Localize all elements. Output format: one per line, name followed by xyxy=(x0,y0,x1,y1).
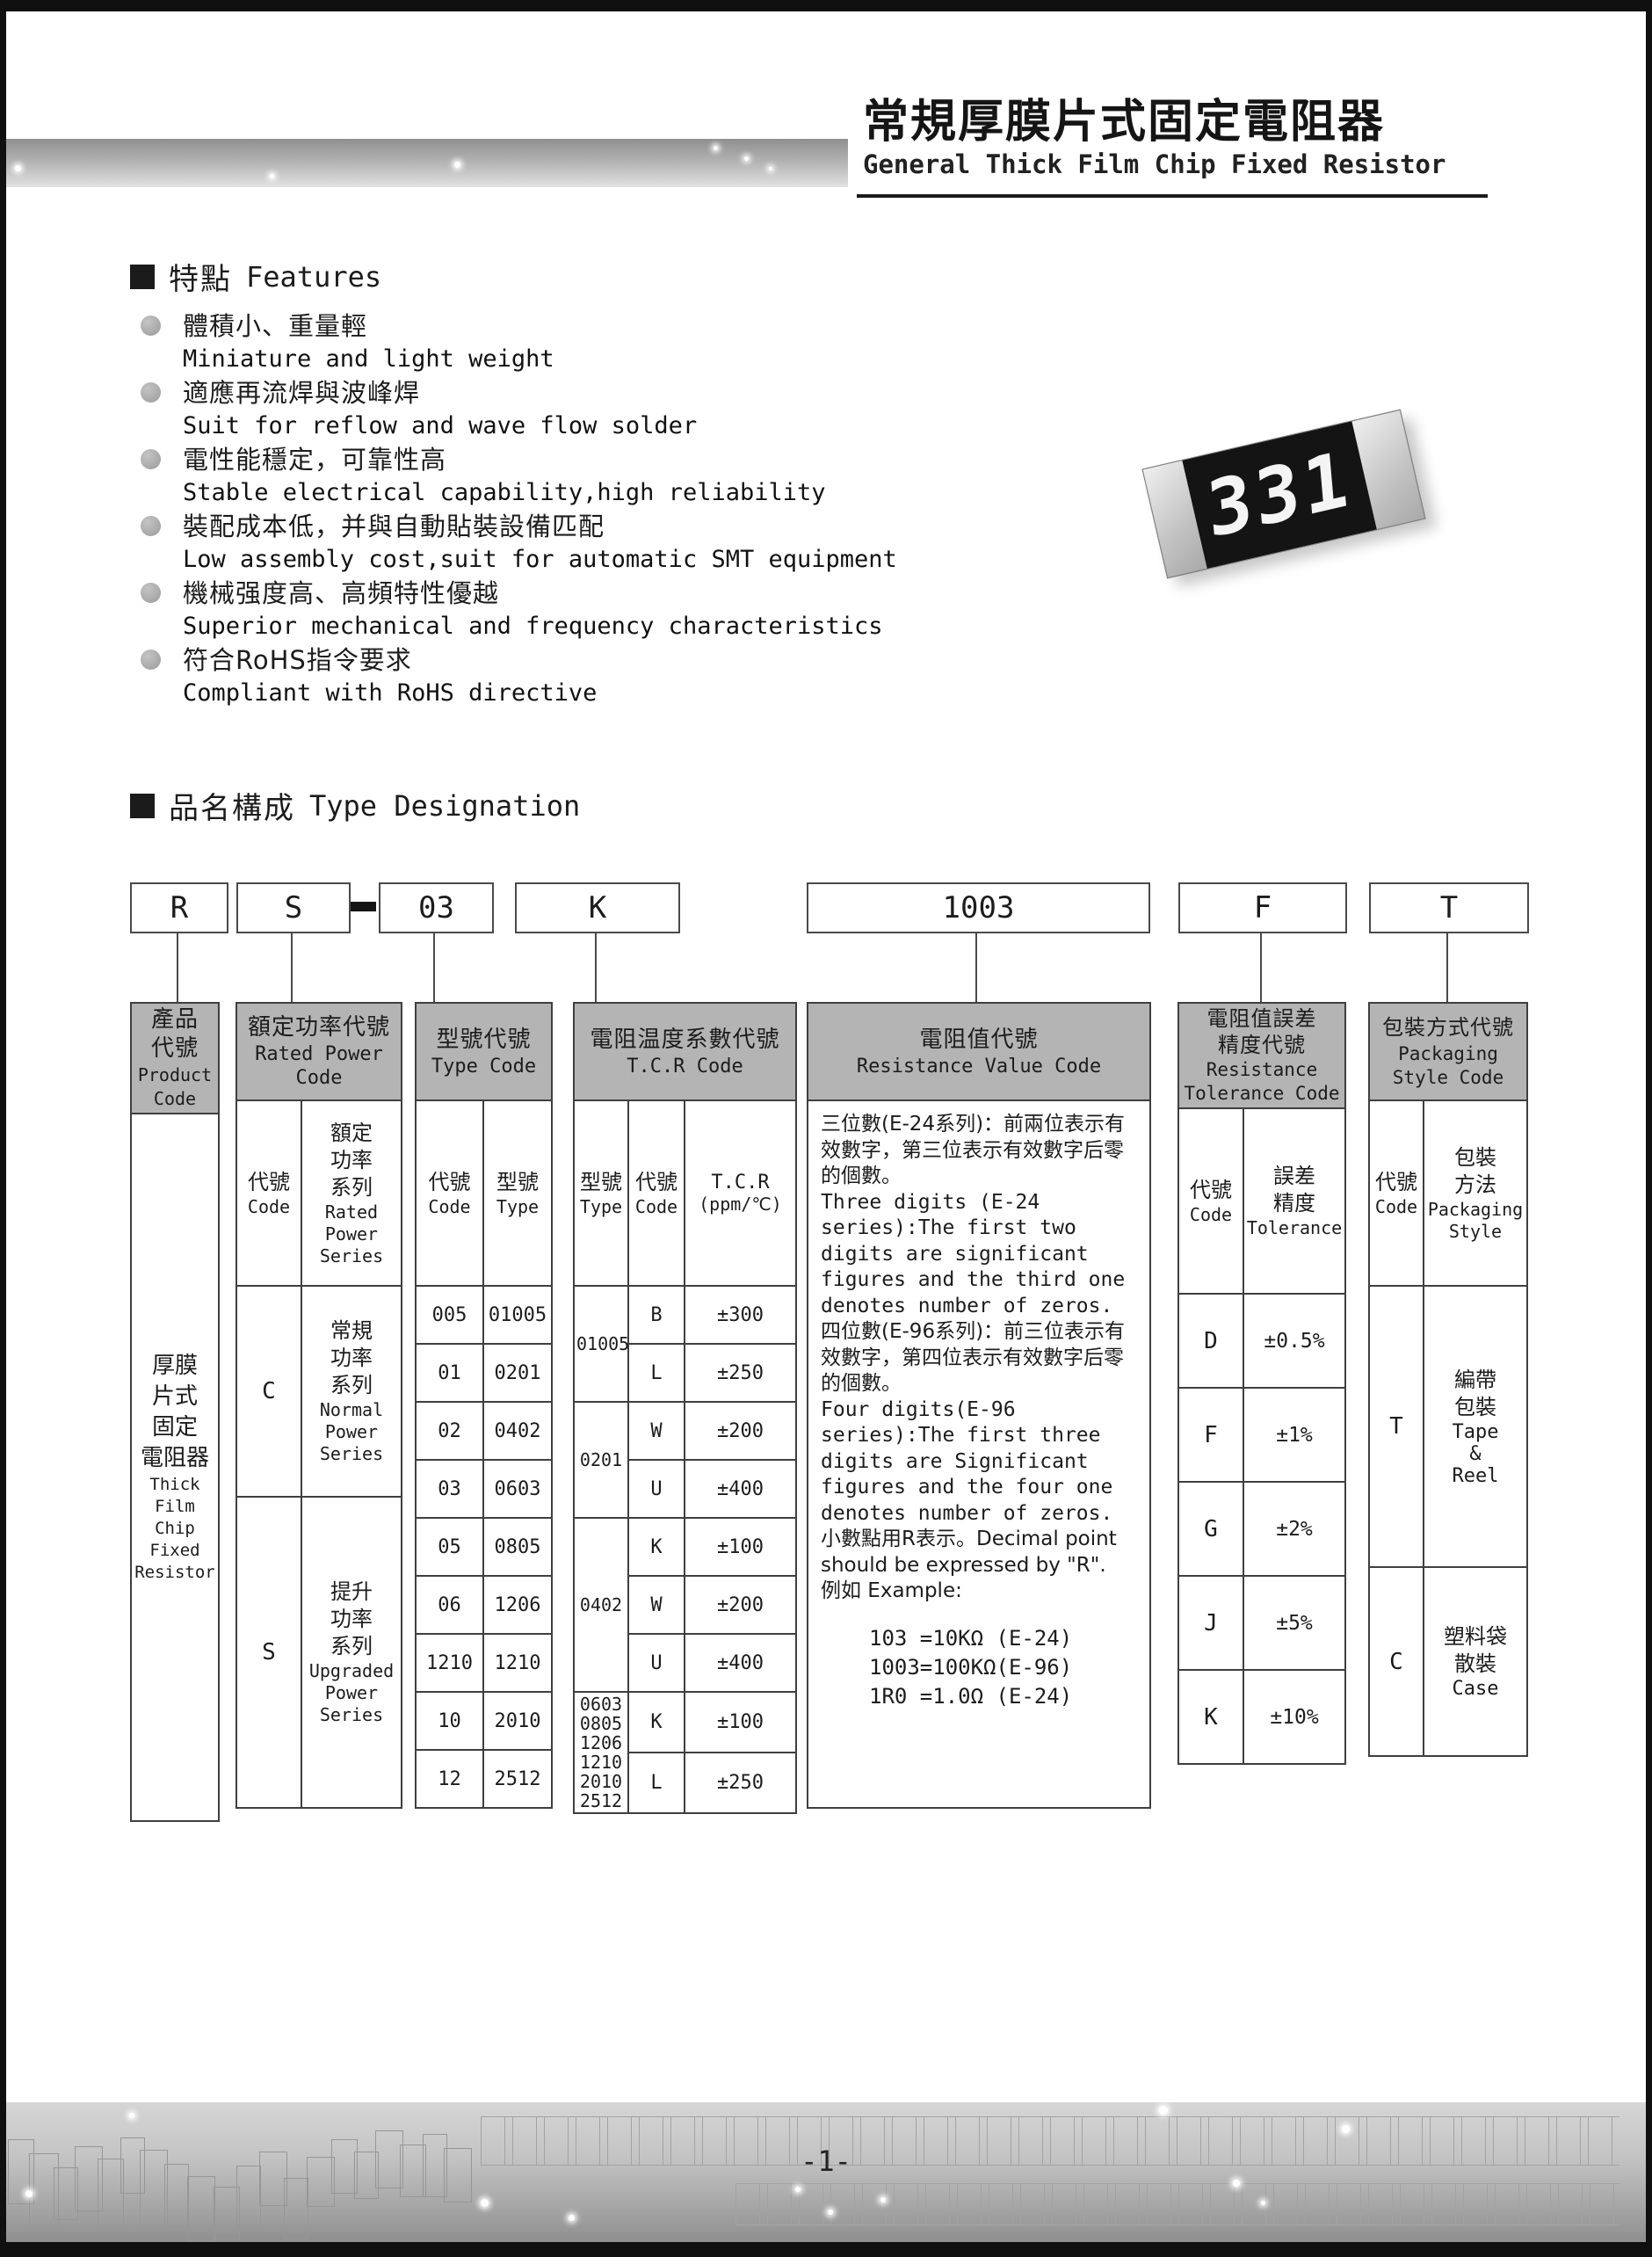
feature-zh: 電性能穩定，可靠性高 xyxy=(183,443,1142,477)
rated-power-row-series: 常規 功率 系列 Normal Power Series xyxy=(301,1286,402,1497)
bullet-icon xyxy=(141,316,161,336)
leader-line xyxy=(1260,932,1262,1004)
code-box-tcr: K xyxy=(515,882,680,933)
feature-item: 體積小、重量輕 Miniature and light weight xyxy=(132,309,1142,376)
resistance-value-table: 電阻值代號 Resistance Value Code 三位數(E-24系列)：… xyxy=(807,1002,1151,1809)
type-row-type: 2512 xyxy=(483,1750,552,1808)
page-title-en: General Thick Film Chip Fixed Resistor xyxy=(863,149,1531,179)
tcr-code: L xyxy=(628,1344,685,1402)
type-designation-heading-zh: 品名構成 xyxy=(169,784,295,827)
tcr-value: ±100 xyxy=(685,1518,796,1576)
type-row-code: 02 xyxy=(416,1402,483,1460)
type-designation-heading: 品名構成 Type Designation xyxy=(130,784,580,827)
page-edge-right xyxy=(1646,0,1652,2257)
tcr-value: ±200 xyxy=(685,1402,796,1460)
title-underline xyxy=(857,194,1488,198)
features-list: 體積小、重量輕 Miniature and light weight 適應再流焊… xyxy=(132,309,1142,710)
page-title-zh: 常規厚膜片式固定電阻器 xyxy=(863,84,1531,150)
type-row-type: 2010 xyxy=(483,1692,552,1750)
code-box-resistance: 1003 xyxy=(807,882,1150,933)
rated-power-code-label: 代號 Code xyxy=(236,1100,301,1286)
tcr-value: ±300 xyxy=(685,1286,796,1344)
tcr-type-label: 型號 Type xyxy=(574,1100,628,1286)
tcr-value: ±400 xyxy=(685,1634,796,1692)
type-row-code: 01 xyxy=(416,1344,483,1402)
feature-en: Compliant with RoHS directive xyxy=(183,678,1142,709)
type-row-type: 01005 xyxy=(483,1286,552,1344)
tcr-code: K xyxy=(628,1692,685,1753)
dash-separator: - xyxy=(351,902,376,911)
tolerance-header: 電阻值誤差 精度代號 Resistance Tolerance Code xyxy=(1178,1003,1345,1108)
tcr-group-type: 01005 xyxy=(574,1286,628,1402)
packaging-row-style: 塑料袋 散裝 Case xyxy=(1424,1567,1527,1756)
type-row-type: 0805 xyxy=(483,1518,552,1576)
bullet-icon xyxy=(141,650,161,670)
type-code-table: 型號代號 Type Code 代號 Code 型號 Type 00501005 … xyxy=(415,1002,553,1809)
type-row-type: 0201 xyxy=(483,1344,552,1402)
product-code-table: 產品 代號 Product Code 厚膜 片式 固定 電阻器 Thick Fi… xyxy=(130,1002,220,1822)
tolerance-row-value: ±1% xyxy=(1243,1388,1345,1482)
tcr-value: ±200 xyxy=(685,1576,796,1634)
tcr-code: B xyxy=(628,1286,685,1344)
type-row-code: 12 xyxy=(416,1750,483,1808)
bullet-icon xyxy=(141,449,161,469)
features-heading-zh: 特點 xyxy=(169,255,232,298)
type-row-code: 03 xyxy=(416,1460,483,1518)
bullet-icon xyxy=(141,583,161,603)
type-row-code: 10 xyxy=(416,1692,483,1750)
sparkle-decoration xyxy=(454,162,460,168)
tcr-value: ±100 xyxy=(685,1692,796,1753)
packaging-code-label: 代號 Code xyxy=(1369,1100,1424,1286)
sparkle-decoration xyxy=(744,156,749,161)
tcr-value: ±250 xyxy=(685,1344,796,1402)
sparkle-decoration xyxy=(270,174,274,178)
feature-en: Miniature and light weight xyxy=(183,344,1142,375)
tolerance-row-value: ±0.5% xyxy=(1243,1294,1345,1388)
tcr-code: W xyxy=(628,1402,685,1460)
type-row-code: 06 xyxy=(416,1576,483,1634)
page-edge-left xyxy=(0,0,6,2257)
packaging-style-label: 包裝 方法 Packaging Style xyxy=(1424,1100,1527,1286)
tolerance-row-code: G xyxy=(1178,1482,1243,1576)
tcr-group-type: 0402 xyxy=(574,1518,628,1692)
tolerance-row-code: D xyxy=(1178,1294,1243,1388)
feature-en: Low assembly cost,suit for automatic SMT… xyxy=(183,544,1142,576)
features-heading-en: Features xyxy=(246,260,381,294)
rated-power-row-series: 提升 功率 系列 Upgraded Power Series xyxy=(301,1497,402,1808)
code-box-rated-power: S xyxy=(236,882,351,933)
tolerance-row-value: ±5% xyxy=(1243,1576,1345,1670)
rated-power-row-code: S xyxy=(236,1497,301,1808)
feature-en: Stable electrical capability,high reliab… xyxy=(183,477,1142,509)
sparkle-decoration xyxy=(714,146,718,150)
code-box-product: R xyxy=(130,882,228,933)
section-square-icon xyxy=(130,794,155,818)
page-number: -1- xyxy=(0,2145,1652,2178)
feature-item: 裝配成本低，并與自動貼裝設備匹配 Low assembly cost,suit … xyxy=(132,510,1142,577)
tcr-code: K xyxy=(628,1518,685,1576)
datasheet-page: 常規厚膜片式固定電阻器 General Thick Film Chip Fixe… xyxy=(0,0,1652,2257)
feature-item: 電性能穩定，可靠性高 Stable electrical capability,… xyxy=(132,443,1142,510)
type-code-code-label: 代號 Code xyxy=(416,1100,483,1286)
feature-zh: 體積小、重量輕 xyxy=(183,309,1142,344)
tcr-code: L xyxy=(628,1753,685,1813)
resistor-photo: 331 xyxy=(1142,411,1432,605)
tcr-group-type: 0603 0805 1206 1210 2010 2512 xyxy=(574,1692,628,1813)
rated-power-header: 額定功率代號 Rated Power Code xyxy=(236,1003,402,1100)
packaging-row-code: C xyxy=(1369,1567,1424,1756)
header-gradient-bar xyxy=(6,139,848,187)
sparkle-decoration xyxy=(15,165,21,171)
type-code-type-label: 型號 Type xyxy=(483,1100,552,1286)
rated-power-series-label: 額定 功率 系列 Rated Power Series xyxy=(301,1100,402,1286)
tcr-value: ±400 xyxy=(685,1460,796,1518)
feature-zh: 適應再流焊與波峰焊 xyxy=(183,376,1142,410)
section-square-icon xyxy=(130,265,155,289)
tcr-code-label: 代號 Code xyxy=(628,1100,685,1286)
type-designation-heading-en: Type Designation xyxy=(309,789,580,823)
tolerance-row-code: F xyxy=(1178,1388,1243,1482)
sparkle-decoration xyxy=(769,167,772,171)
chip-marking: 331 xyxy=(1204,434,1355,555)
tcr-code: U xyxy=(628,1460,685,1518)
leader-line xyxy=(291,932,293,1004)
resistance-value-body: 三位數(E-24系列)：前兩位表示有效數字，第三位表示有效數字后零的個數。 Th… xyxy=(808,1100,1150,1808)
tolerance-tol-label: 誤差 精度 Tolerance xyxy=(1243,1108,1345,1294)
chip-body: 331 xyxy=(1182,421,1376,568)
tolerance-code-label: 代號 Code xyxy=(1178,1108,1243,1294)
tolerance-row-code: J xyxy=(1178,1576,1243,1670)
type-row-type: 0402 xyxy=(483,1402,552,1460)
resistance-examples: 103 =10KΩ (E-24) 1003=100KΩ(E-96) 1R0 =1… xyxy=(869,1624,1137,1711)
tcr-code: W xyxy=(628,1576,685,1634)
tcr-value: ±250 xyxy=(685,1753,796,1813)
code-box-packaging: T xyxy=(1369,882,1529,933)
feature-zh: 裝配成本低，并與自動貼裝設備匹配 xyxy=(183,510,1142,544)
product-header: 產品 代號 Product Code xyxy=(131,1003,219,1114)
tolerance-row-value: ±2% xyxy=(1243,1482,1345,1576)
tcr-group-type: 0201 xyxy=(574,1402,628,1518)
type-row-type: 1206 xyxy=(483,1576,552,1634)
type-code-header: 型號代號 Type Code xyxy=(416,1003,552,1100)
type-row-code: 1210 xyxy=(416,1634,483,1692)
chip-resistor-image: 331 xyxy=(1141,410,1425,579)
resistance-value-header: 電阻值代號 Resistance Value Code xyxy=(808,1003,1150,1100)
feature-en: Suit for reflow and wave flow solder xyxy=(183,410,1142,442)
leader-line xyxy=(433,932,435,1004)
page-edge-top xyxy=(0,0,1652,11)
packaging-row-style: 編帶 包裝 Tape & Reel xyxy=(1424,1286,1527,1567)
rated-power-row-code: C xyxy=(236,1286,301,1497)
leader-line xyxy=(975,932,977,1004)
rated-power-table: 額定功率代號 Rated Power Code 代號 Code 額定 功率 系列… xyxy=(235,1002,402,1809)
type-row-code: 005 xyxy=(416,1286,483,1344)
code-box-type: 03 xyxy=(379,882,494,933)
feature-zh: 機械强度高、高頻特性優越 xyxy=(183,577,1142,611)
type-row-code: 05 xyxy=(416,1518,483,1576)
leader-line xyxy=(177,932,178,1004)
packaging-header: 包裝方式代號 Packaging Style Code xyxy=(1369,1003,1527,1100)
bullet-icon xyxy=(141,382,161,403)
product-body: 厚膜 片式 固定 電阻器 Thick Film Chip Fixed Resis… xyxy=(131,1114,219,1821)
tcr-header: 電阻温度系數代號 T.C.R Code xyxy=(574,1003,796,1100)
packaging-row-code: T xyxy=(1369,1286,1424,1567)
leader-line xyxy=(1446,932,1448,1004)
bullet-icon xyxy=(141,516,161,536)
feature-zh: 符合RoHS指令要求 xyxy=(183,643,1142,678)
feature-en: Superior mechanical and frequency charac… xyxy=(183,611,1142,642)
leader-line xyxy=(595,932,597,1004)
packaging-table: 包裝方式代號 Packaging Style Code 代號 Code 包裝 方… xyxy=(1368,1002,1528,1757)
tcr-value-label: T.C.R (ppm/℃) xyxy=(685,1100,796,1286)
feature-item: 符合RoHS指令要求 Compliant with RoHS directive xyxy=(132,643,1142,710)
tolerance-row-value: ±10% xyxy=(1243,1670,1345,1764)
tolerance-row-code: K xyxy=(1178,1670,1243,1764)
feature-item: 機械强度高、高頻特性優越 Superior mechanical and fre… xyxy=(132,577,1142,643)
tcr-table: 電阻温度系數代號 T.C.R Code 型號 Type 代號 Code T.C.… xyxy=(573,1002,797,1814)
features-heading: 特點 Features xyxy=(130,255,381,298)
type-row-type: 0603 xyxy=(483,1460,552,1518)
tcr-code: U xyxy=(628,1634,685,1692)
feature-item: 適應再流焊與波峰焊 Suit for reflow and wave flow … xyxy=(132,376,1142,443)
tolerance-table: 電阻值誤差 精度代號 Resistance Tolerance Code 代號 … xyxy=(1177,1002,1346,1765)
type-row-type: 1210 xyxy=(483,1634,552,1692)
page-edge-bottom xyxy=(0,2242,1652,2257)
code-box-tolerance: F xyxy=(1178,882,1347,933)
